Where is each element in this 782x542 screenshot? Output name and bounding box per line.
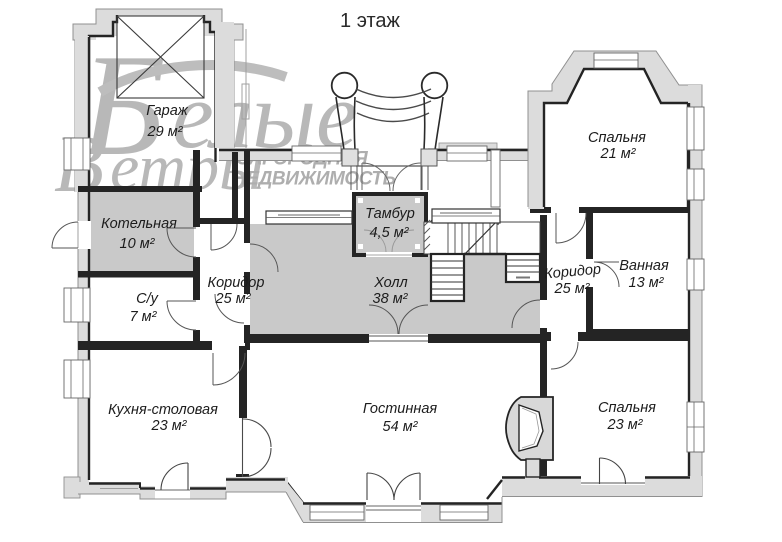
svg-text:21 м²: 21 м² xyxy=(600,146,637,162)
svg-text:10 м²: 10 м² xyxy=(120,236,156,252)
svg-text:Котельная: Котельная xyxy=(101,216,177,232)
svg-text:13 м²: 13 м² xyxy=(629,275,665,291)
svg-text:7 м²: 7 м² xyxy=(130,309,158,325)
svg-text:1 этаж: 1 этаж xyxy=(340,10,401,32)
svg-text:Гостинная: Гостинная xyxy=(363,401,438,417)
svg-text:Кухня-столовая: Кухня-столовая xyxy=(108,402,218,418)
svg-text:54 м²: 54 м² xyxy=(383,419,419,435)
svg-text:Тамбур: Тамбур xyxy=(365,206,415,222)
svg-text:Коридор: Коридор xyxy=(208,275,265,291)
svg-text:НЕДВИЖИМОСТЬ: НЕДВИЖИМОСТЬ xyxy=(233,169,396,190)
svg-text:Холл: Холл xyxy=(373,275,407,291)
svg-text:25 м²: 25 м² xyxy=(554,281,591,297)
svg-text:С/у: С/у xyxy=(136,291,159,307)
svg-text:Спальня: Спальня xyxy=(598,400,656,416)
svg-text:25 м²: 25 м² xyxy=(215,291,252,307)
svg-text:29 м²: 29 м² xyxy=(147,124,184,140)
svg-text:4,5 м²: 4,5 м² xyxy=(370,225,410,241)
svg-text:Ванная: Ванная xyxy=(619,258,669,274)
svg-text:Гараж: Гараж xyxy=(146,103,189,119)
svg-text:23 м²: 23 м² xyxy=(607,417,644,433)
svg-text:23 м²: 23 м² xyxy=(151,418,188,434)
svg-text:Спальня: Спальня xyxy=(588,130,646,146)
svg-text:38 м²: 38 м² xyxy=(373,291,409,307)
